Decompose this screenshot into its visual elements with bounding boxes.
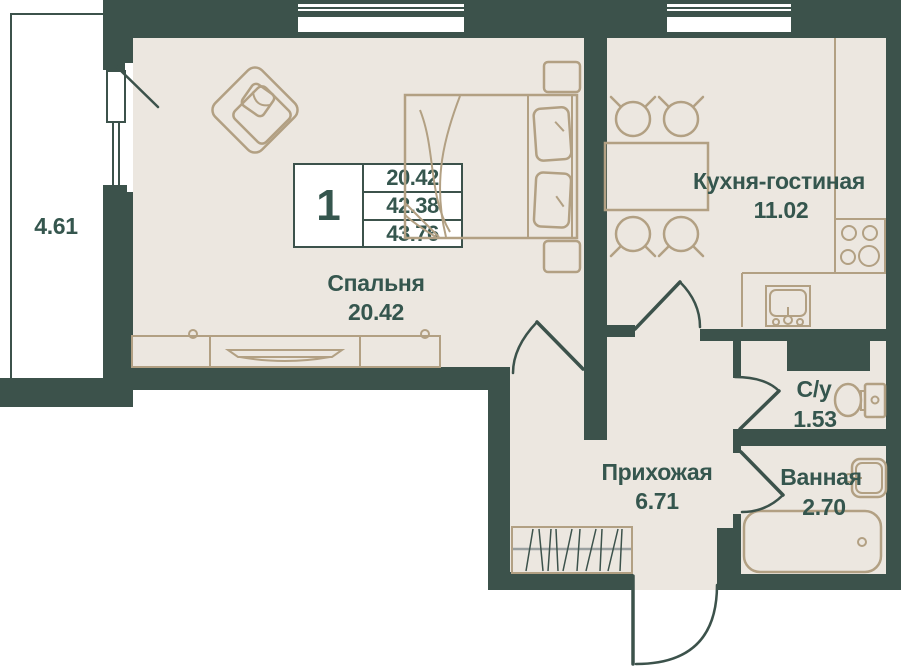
entrance-door <box>633 576 717 664</box>
wardrobe <box>512 527 632 573</box>
balcony-door-swing <box>116 66 158 107</box>
wc-area: 1.53 <box>765 407 865 432</box>
bathroom-area: 2.70 <box>744 495 904 520</box>
wc-label: С/у <box>764 377 864 402</box>
armchair <box>208 63 301 156</box>
bedroom-label: Спальня <box>276 271 476 296</box>
bedroom-door <box>513 322 583 373</box>
nightstand <box>544 62 580 272</box>
kitchen-sink <box>766 286 810 326</box>
bathroom-label: Ванная <box>741 465 901 490</box>
kitchen-area: 11.02 <box>681 198 881 223</box>
kitchen-label: Кухня-гостиная <box>679 169 879 194</box>
balcony-area: 4.61 <box>6 214 106 239</box>
tv-stand <box>132 330 440 367</box>
floor-plan: 1 20.42 42.38 43.76 <box>0 0 904 671</box>
kitchen-door <box>635 282 700 329</box>
furniture-layer <box>0 0 904 671</box>
stove <box>835 219 885 273</box>
hallway-area: 6.71 <box>557 489 757 514</box>
bed <box>405 95 577 238</box>
bedroom-area: 20.42 <box>276 300 476 325</box>
hallway-label: Прихожая <box>557 460 757 485</box>
